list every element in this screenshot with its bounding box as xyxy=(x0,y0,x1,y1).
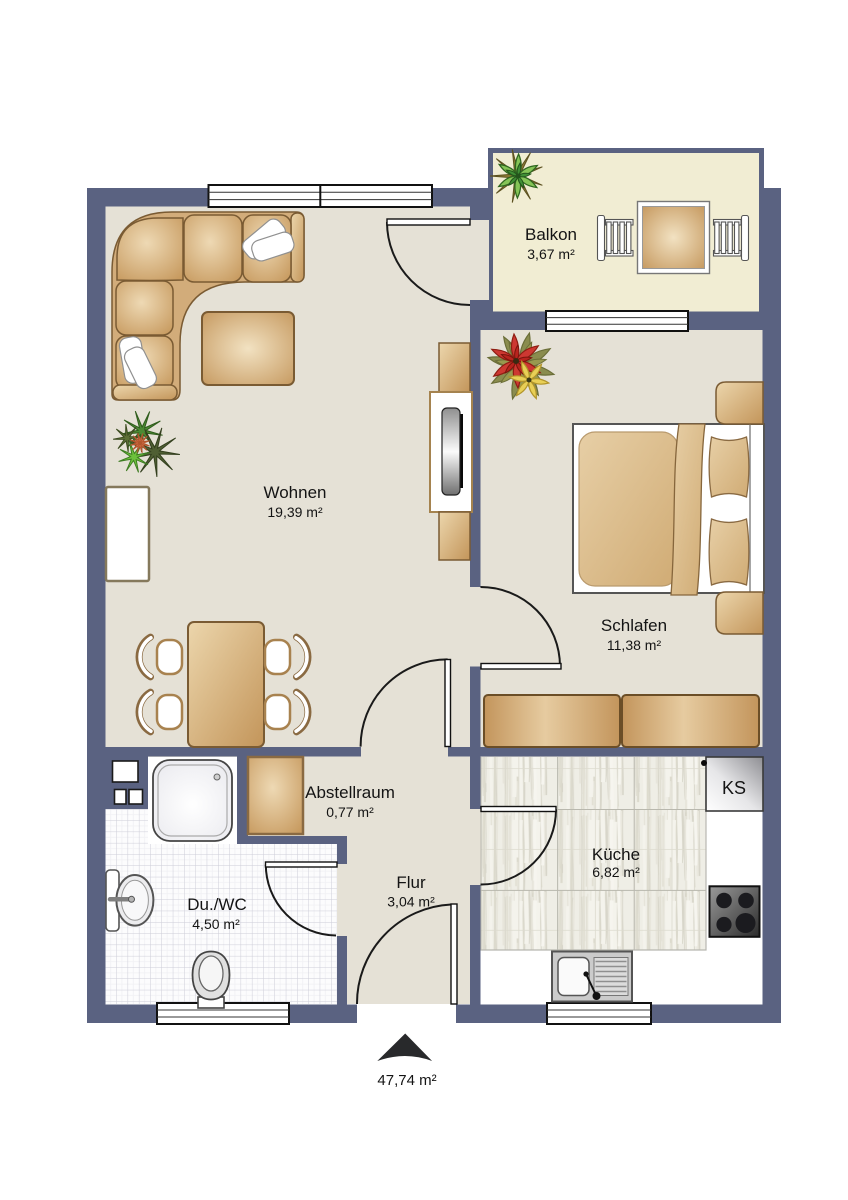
svg-text:Du./WC: Du./WC xyxy=(187,895,247,914)
svg-text:4,50 m²: 4,50 m² xyxy=(192,916,240,932)
svg-text:6,82 m²: 6,82 m² xyxy=(592,864,640,880)
svg-text:Küche: Küche xyxy=(592,845,640,864)
svg-text:Flur: Flur xyxy=(396,873,426,892)
svg-text:Abstellraum: Abstellraum xyxy=(305,783,395,802)
svg-text:3,04 m²: 3,04 m² xyxy=(387,894,435,910)
svg-text:47,74 m²: 47,74 m² xyxy=(377,1072,436,1089)
svg-text:Wohnen: Wohnen xyxy=(263,483,326,502)
svg-text:Schlafen: Schlafen xyxy=(601,616,667,635)
svg-text:19,39 m²: 19,39 m² xyxy=(267,504,323,520)
svg-text:11,38 m²: 11,38 m² xyxy=(607,637,662,653)
svg-text:Balkon: Balkon xyxy=(525,225,577,244)
svg-text:3,67 m²: 3,67 m² xyxy=(527,246,575,262)
svg-text:0,77 m²: 0,77 m² xyxy=(326,804,374,820)
svg-text:KS: KS xyxy=(722,778,746,798)
